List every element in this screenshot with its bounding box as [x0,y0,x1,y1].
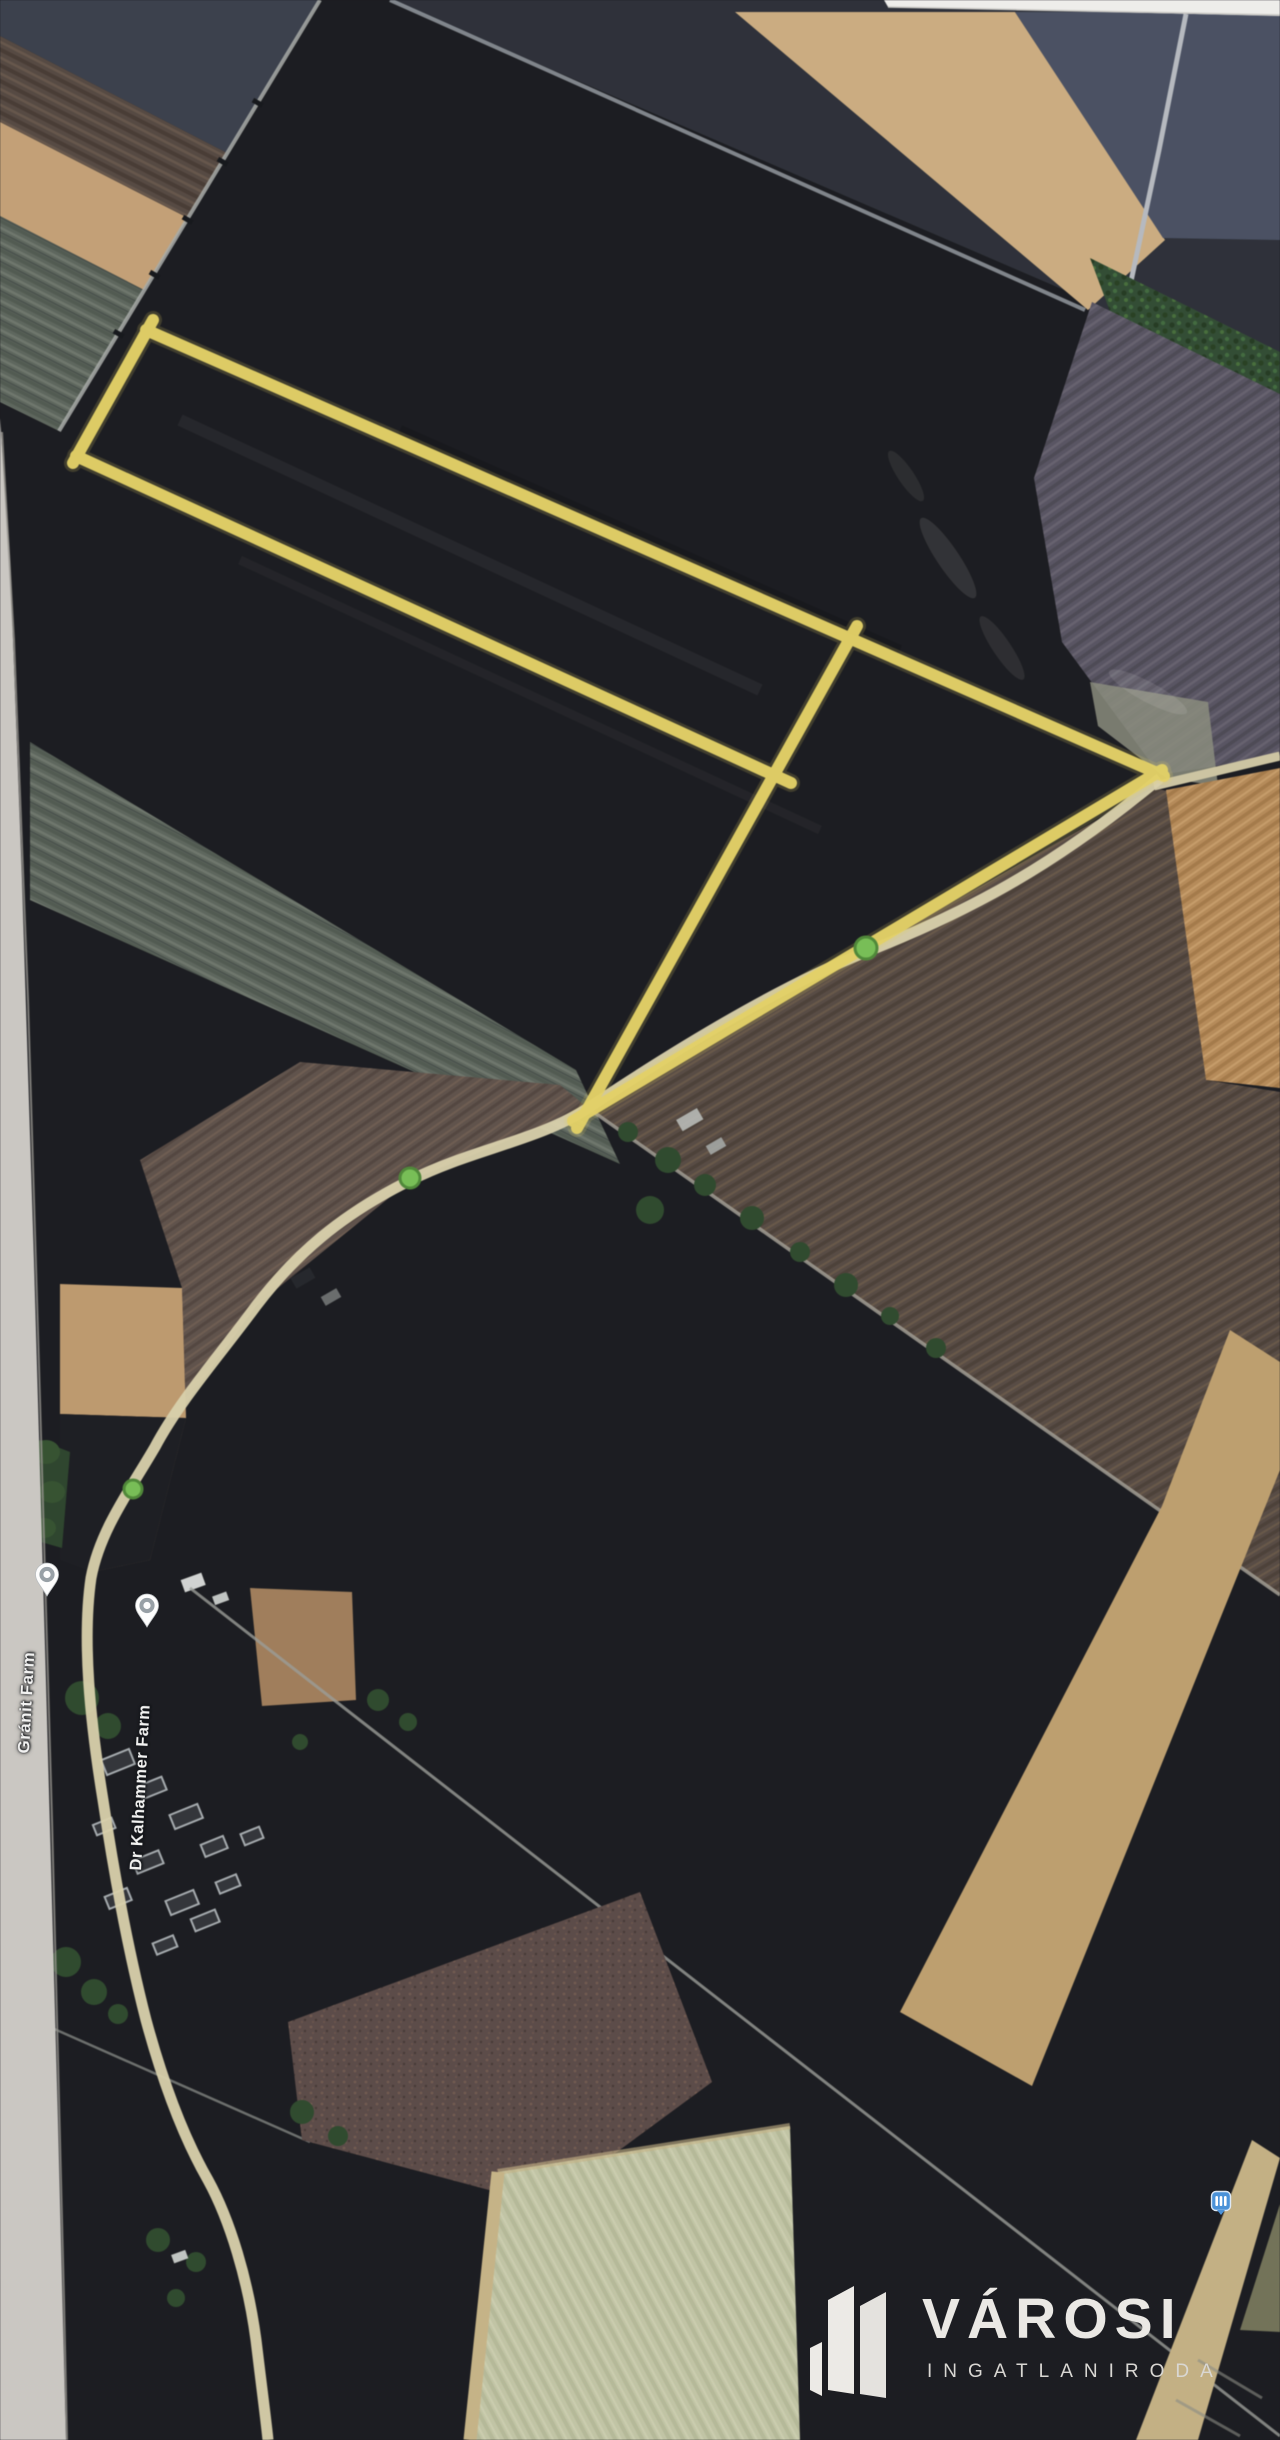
brand-subtitle: INGATLANIRODA [927,2362,1224,2381]
transit-stop-marker [1210,2190,1232,2221]
granit-farm-pin [32,1562,62,1603]
map-pin-icon [132,1593,162,1629]
listing-photo: Gránit Farm Dr Kalhammer Farm VÁROSI [0,0,1280,2440]
transit-stop-icon [1210,2190,1232,2216]
satellite-map [0,0,1280,2440]
brand-name: VÁROSI [922,2291,1183,2348]
brand-building-icon [810,2272,894,2402]
kalhammer-farm-pin [132,1593,162,1634]
pale-green-field [470,2126,800,2440]
map-pin-icon [32,1562,62,1598]
